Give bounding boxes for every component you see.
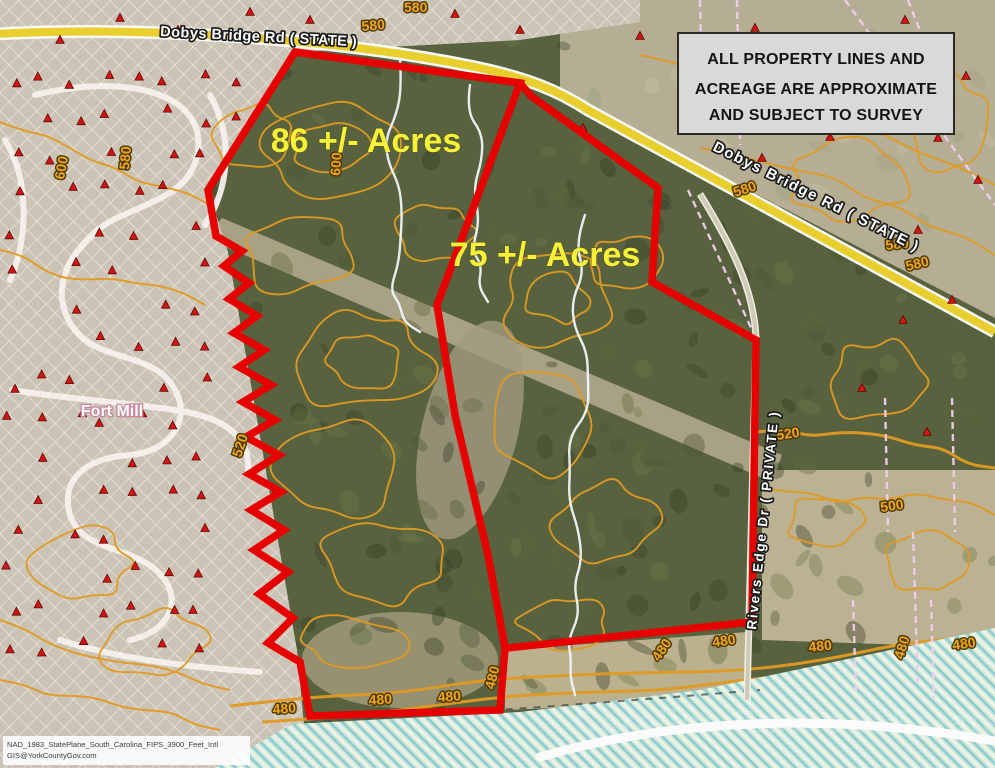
contour-elevation-label: 480	[368, 690, 393, 708]
attribution-box: NAD_1983_StatePlane_South_Carolina_FIPS_…	[3, 736, 250, 765]
parcel-acreage-label-86: 86 +/- Acres	[271, 122, 462, 160]
disclaimer-line3: AND SUBJECT TO SURVEY	[709, 107, 923, 124]
contour-elevation-label: 580	[404, 0, 428, 15]
contour-elevation-label: 580	[116, 145, 134, 170]
parcel-acreage-label-75: 75 +/- Acres	[450, 236, 641, 274]
city-label-fort-mill: Fort Mill	[81, 403, 143, 420]
contour-elevation-label: 480	[951, 634, 977, 653]
contour-elevation-label: 580	[361, 16, 386, 34]
contour-elevation-label: 480	[437, 687, 462, 705]
map-canvas: 6005806005805805805805805205205004804804…	[0, 0, 995, 768]
contour-elevation-label: 480	[272, 699, 297, 717]
disclaimer-line2: ACREAGE ARE APPROXIMATE	[695, 81, 937, 98]
disclaimer-box: ALL PROPERTY LINES AND ACREAGE ARE APPRO…	[678, 33, 954, 134]
watermark: Carolina Farms & Estates	[575, 703, 995, 740]
contour-elevation-label: 480	[808, 637, 833, 655]
field-right	[762, 470, 995, 648]
contour-elevation-label: 480	[711, 631, 737, 650]
attribution-line2: GIS@YorkCountyGov.com	[7, 751, 97, 760]
aerial-parcel-map: 6005806005805805805805805205205004804804…	[0, 0, 995, 768]
contour-elevation-label: 500	[879, 496, 905, 515]
disclaimer-line1: ALL PROPERTY LINES AND	[707, 51, 924, 68]
attribution-line1: NAD_1983_StatePlane_South_Carolina_FIPS_…	[7, 740, 218, 749]
tree-canopy-blob	[951, 352, 966, 365]
